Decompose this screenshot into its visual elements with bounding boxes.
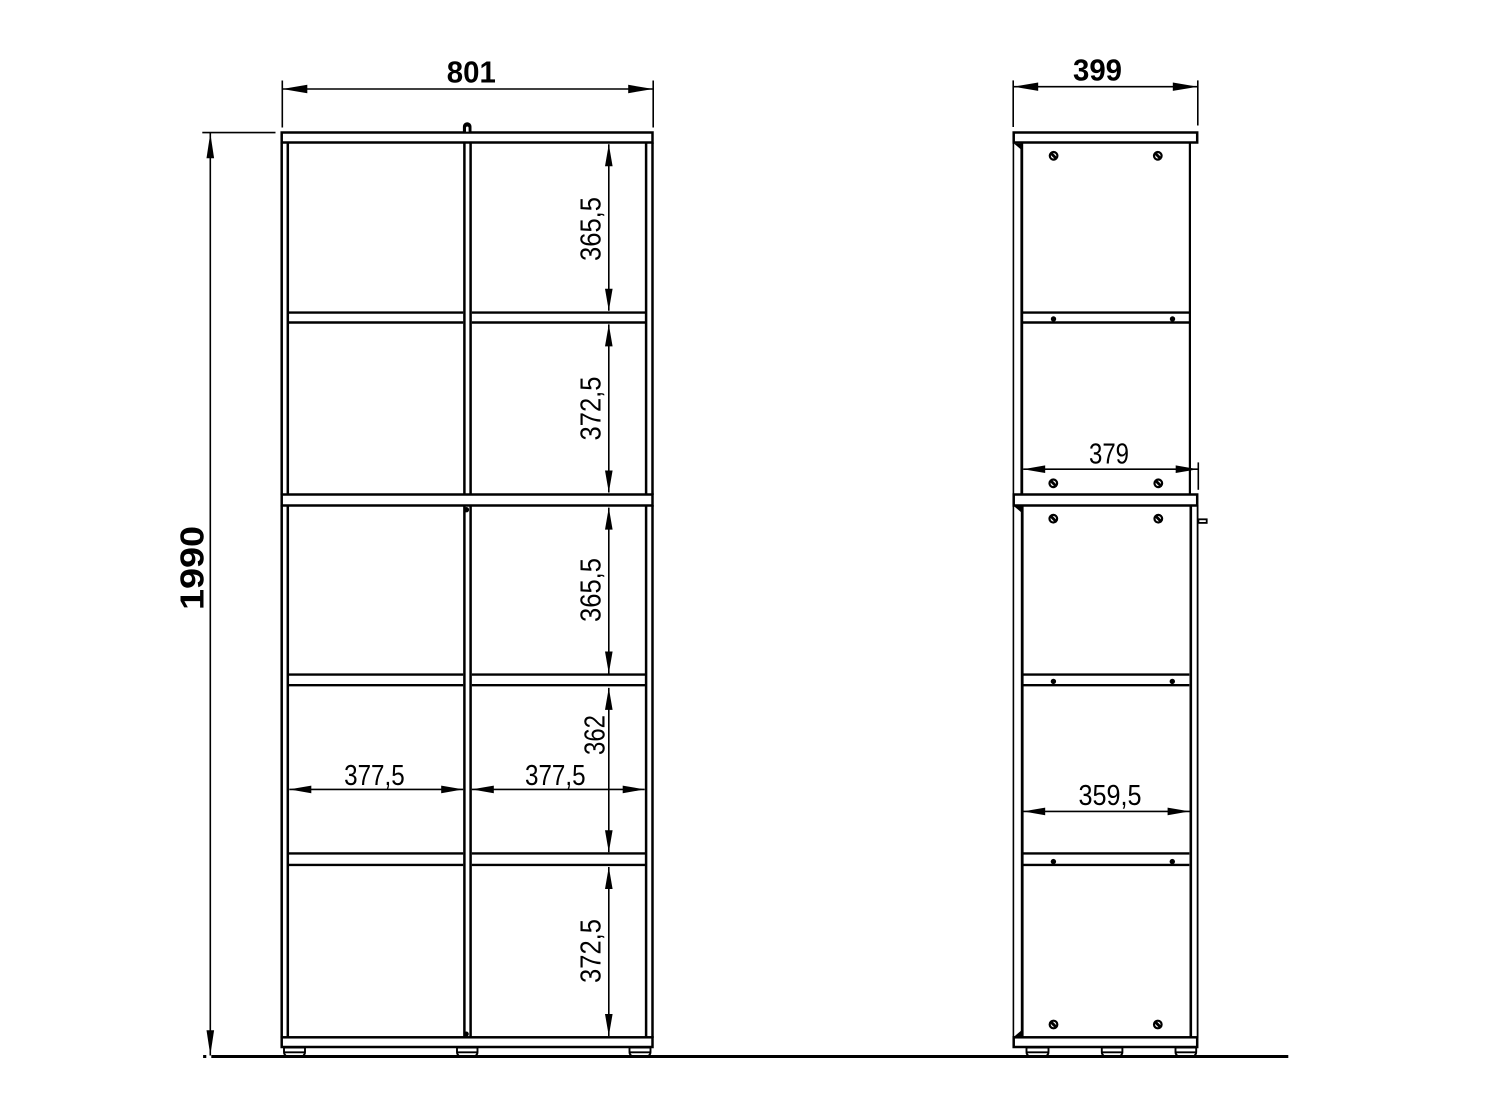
svg-text:377,5: 377,5: [344, 760, 405, 792]
svg-text:365,5: 365,5: [576, 558, 608, 622]
svg-text:372,5: 372,5: [576, 919, 608, 983]
svg-text:1990: 1990: [173, 526, 210, 610]
svg-text:801: 801: [447, 55, 496, 90]
svg-text:362: 362: [579, 715, 611, 755]
svg-text:379: 379: [1089, 438, 1129, 470]
svg-text:399: 399: [1073, 53, 1122, 88]
svg-text:359,5: 359,5: [1079, 780, 1142, 812]
svg-text:377,5: 377,5: [525, 760, 586, 792]
svg-text:365,5: 365,5: [576, 197, 608, 261]
svg-text:372,5: 372,5: [576, 377, 608, 441]
